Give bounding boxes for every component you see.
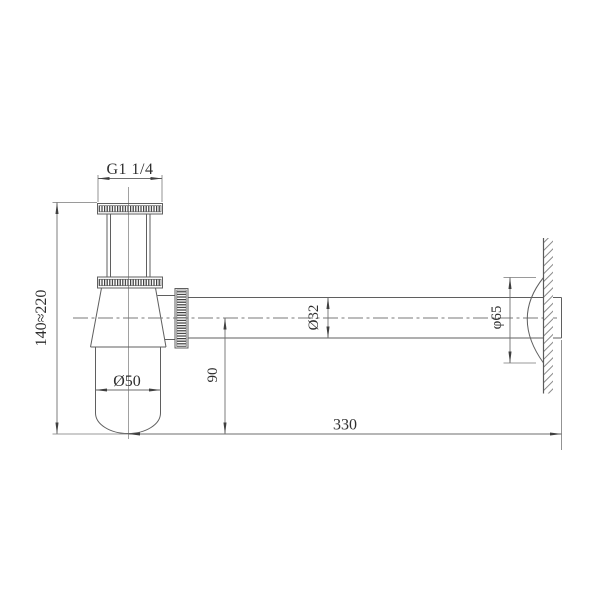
wall-hatch xyxy=(544,238,553,394)
thread-size-label: G1 1/4 xyxy=(107,161,154,178)
wall-flange xyxy=(527,278,543,364)
bottle-trap-diagram: G1 1/4 140≈220 Ø50 90 Ø32 φ65 330 xyxy=(0,0,600,600)
outlet-drop-label: 90 xyxy=(205,368,221,383)
flange-diameter-label: φ65 xyxy=(489,306,505,330)
technical-drawing: G1 1/4 140≈220 Ø50 90 Ø32 φ65 330 xyxy=(0,0,600,600)
inlet-coupling-nut xyxy=(98,204,163,215)
dim-thread-size: G1 1/4 xyxy=(98,161,162,202)
body-diameter-label: Ø50 xyxy=(113,373,141,390)
pipe-diameter-label: Ø32 xyxy=(306,305,322,331)
dim-outlet-drop: 90 xyxy=(205,318,225,434)
dim-body-diameter: Ø50 xyxy=(96,373,161,390)
outlet-connector xyxy=(158,296,176,340)
wall-section xyxy=(544,238,554,394)
height-range-label: 140≈220 xyxy=(33,290,50,347)
dim-flange-diameter: φ65 xyxy=(489,278,536,364)
body-coupling-nut xyxy=(98,277,163,288)
pipe-length-label: 330 xyxy=(333,417,357,434)
